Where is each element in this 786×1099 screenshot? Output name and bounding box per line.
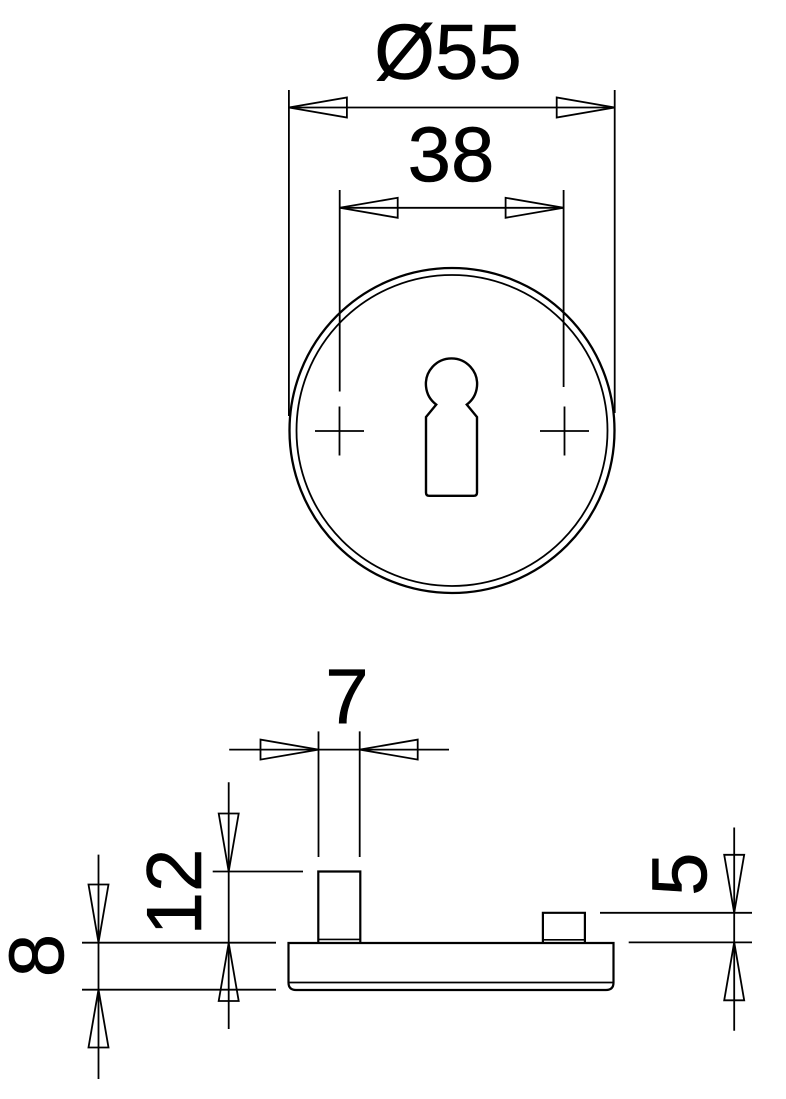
- svg-text:5: 5: [635, 853, 723, 896]
- svg-text:Ø55: Ø55: [374, 8, 521, 96]
- svg-text:38: 38: [408, 110, 495, 198]
- svg-text:7: 7: [325, 652, 368, 740]
- svg-text:8: 8: [0, 934, 80, 977]
- svg-text:12: 12: [130, 849, 218, 936]
